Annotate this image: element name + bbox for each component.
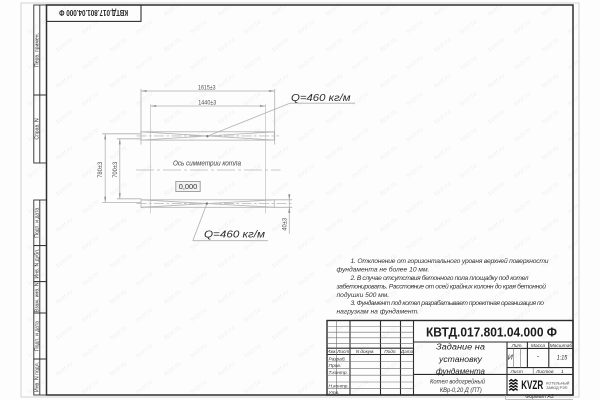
svg-text:0,000: 0,000 (179, 182, 198, 191)
svg-text:Инв. N дубл.: Инв. N дубл. (34, 249, 40, 279)
svg-text:подушки 500 мм.: подушки 500 мм. (337, 291, 390, 299)
svg-text:N докум.: N докум. (356, 349, 375, 354)
svg-text:Подп. и дата: Подп. и дата (34, 208, 40, 238)
svg-text:КОТЕЛЬНЫЙ: КОТЕЛЬНЫЙ (546, 382, 569, 386)
svg-text:Формат А3: Формат А3 (525, 394, 553, 400)
svg-text:КВТД.017.801.04.000 Ф: КВТД.017.801.04.000 Ф (426, 324, 557, 339)
svg-text:Утв.: Утв. (329, 390, 340, 396)
svg-text:Ось симметрии котла: Ось симметрии котла (173, 159, 241, 168)
svg-text:Листов: Листов (535, 369, 554, 375)
svg-text:КВТД.017.801.04.000 Ф: КВТД.017.801.04.000 Ф (59, 8, 128, 18)
svg-text:Лист: Лист (510, 369, 523, 375)
svg-text:Изм.: Изм. (327, 349, 337, 354)
svg-text:Котел водогрейный: Котел водогрейный (430, 379, 486, 386)
svg-text:Разраб.: Разраб. (329, 356, 346, 362)
svg-text:Взам. инв. N: Взам. инв. N (34, 282, 40, 312)
svg-text:Задание на: Задание на (436, 342, 485, 352)
svg-text:Инв. N подл.: Инв. N подл. (34, 362, 40, 392)
svg-text:Лит.: Лит. (511, 343, 523, 349)
svg-text:700±3: 700±3 (112, 161, 119, 177)
svg-text:Дата: Дата (400, 349, 414, 354)
svg-text:Q=460 кг/м: Q=460 кг/м (204, 229, 265, 240)
svg-text:3. Фундамент под котел разраба: 3. Фундамент под котел разрабатывает про… (351, 299, 545, 307)
svg-text:Масса: Масса (531, 343, 546, 349)
svg-text:1:15: 1:15 (557, 354, 568, 361)
svg-text:1440±3: 1440±3 (198, 99, 216, 106)
svg-text:Q=460 кг/м: Q=460 кг/м (291, 93, 351, 104)
svg-text:1: 1 (561, 369, 564, 375)
svg-text:Пров.: Пров. (329, 363, 342, 369)
svg-text:Подп.: Подп. (384, 349, 396, 354)
svg-text:нагрузкам на фундамент.: нагрузкам на фундамент. (337, 308, 420, 316)
svg-text:2. В случае отсутствия бетонно: 2. В случае отсутствия бетонного пола пл… (350, 274, 529, 282)
svg-text:фундамента не более 10 мм.: фундамента не более 10 мм. (337, 266, 430, 274)
svg-text:780±3: 780±3 (97, 161, 104, 177)
svg-text:Масштаб: Масштаб (550, 343, 573, 349)
svg-text:Перв. примен.: Перв. примен. (34, 33, 40, 67)
svg-text:забетонировать. Расстояние от: забетонировать. Расстояние от осей крайн… (336, 282, 547, 290)
svg-text:КВр-0,20 Д (ПТ): КВр-0,20 Д (ПТ) (440, 388, 482, 394)
svg-text:40±3: 40±3 (282, 217, 288, 231)
svg-text:1. Отклонение от горизонтально: 1. Отклонение от горизонтального уровня … (351, 257, 549, 265)
svg-text:KVZR: KVZR (521, 378, 543, 392)
svg-text:фундамента: фундамента (436, 366, 485, 376)
svg-text:установку: установку (438, 354, 483, 364)
svg-text:ЗАВОД РЭП: ЗАВОД РЭП (546, 386, 567, 390)
svg-text:Т.контр.: Т.контр. (329, 370, 348, 376)
svg-text:Н.контр.: Н.контр. (329, 384, 349, 390)
svg-text:Справ. N: Справ. N (34, 118, 40, 140)
svg-text:1615±3: 1615±3 (198, 84, 216, 91)
svg-text:Лист: Лист (336, 349, 349, 354)
svg-text:Подп. и дата: Подп. и дата (34, 321, 40, 351)
